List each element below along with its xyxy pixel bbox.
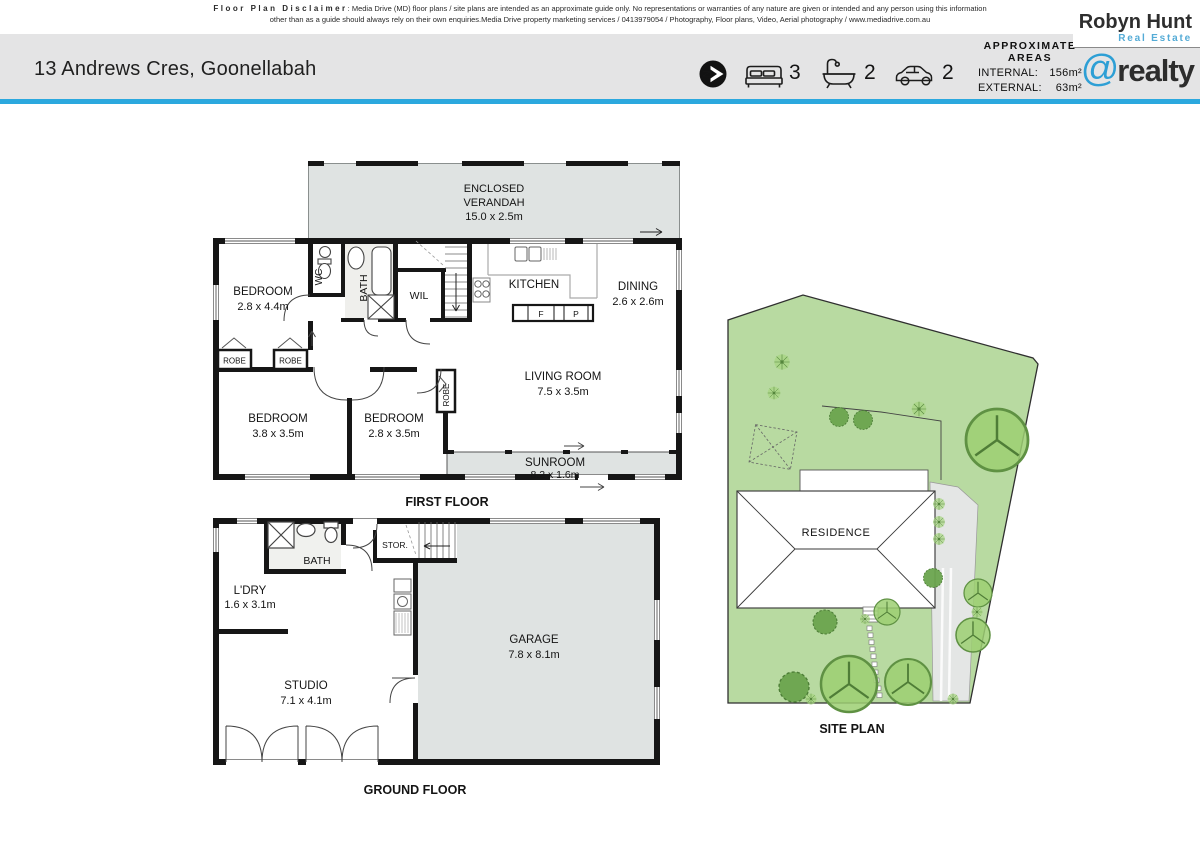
label-bedroom3: BEDROOM bbox=[364, 413, 423, 425]
label-verandah-dims: 15.0 x 2.5m bbox=[465, 211, 522, 223]
disclaimer-line1: Floor Plan Disclaimer: Media Drive (MD) … bbox=[135, 3, 1065, 14]
label-garage: GARAGE bbox=[509, 634, 559, 646]
floor-plan-sheet: Floor Plan Disclaimer: Media Drive (MD) … bbox=[0, 0, 1200, 849]
label-wc: WC bbox=[314, 269, 325, 286]
realty-at-mark: @ bbox=[1081, 49, 1120, 89]
label-residence: RESIDENCE bbox=[802, 527, 871, 539]
bed-icon bbox=[744, 63, 784, 88]
north-compass-icon: N bbox=[698, 59, 728, 89]
disclaimer-text1: : Media Drive (MD) floor plans / site pl… bbox=[348, 4, 987, 13]
caption-first-floor: FIRST FLOOR bbox=[405, 495, 488, 509]
label-bedroom2-dims: 3.8 x 3.5m bbox=[252, 428, 303, 440]
label-pantry: P bbox=[573, 309, 579, 319]
label-living: LIVING ROOM bbox=[525, 371, 602, 383]
label-bath: BATH bbox=[358, 274, 370, 301]
areas-title-1: APPROXIMATE bbox=[978, 40, 1082, 52]
disclaimer-title: Floor Plan Disclaimer bbox=[213, 4, 347, 13]
svg-text:N: N bbox=[700, 70, 711, 77]
disclaimer: Floor Plan Disclaimer: Media Drive (MD) … bbox=[135, 3, 1065, 25]
label-verandah-2: VERANDAH bbox=[463, 197, 524, 209]
agent-logo: Robyn Hunt Real Estate bbox=[1073, 0, 1200, 48]
label-gf-bath: BATH bbox=[303, 555, 330, 567]
internal-value: 156m² bbox=[1049, 67, 1082, 79]
accent-bar bbox=[0, 99, 1200, 104]
label-living-dims: 7.5 x 3.5m bbox=[537, 386, 588, 398]
residence-building bbox=[737, 491, 935, 608]
label-studio-dims: 7.1 x 4.1m bbox=[280, 695, 331, 707]
areas-title-2: AREAS bbox=[978, 52, 1082, 64]
bath-icon bbox=[820, 56, 858, 90]
residence-annex bbox=[800, 470, 928, 491]
bed-count: 3 bbox=[789, 61, 801, 85]
label-wil: WIL bbox=[410, 290, 429, 302]
external-area-row: EXTERNAL: 63m² bbox=[978, 82, 1082, 94]
caption-site-plan: SITE PLAN bbox=[819, 722, 884, 736]
approximate-areas: APPROXIMATE AREAS INTERNAL: 156m² EXTERN… bbox=[978, 40, 1082, 94]
label-kitchen: KITCHEN bbox=[509, 279, 559, 291]
label-verandah-1: ENCLOSED bbox=[464, 183, 525, 195]
site-plan: RESIDENCE SITE PLAN bbox=[715, 290, 1050, 740]
label-stor: STOR. bbox=[382, 540, 408, 550]
label-ldry: L'DRY bbox=[234, 585, 267, 597]
first-floor-plan: ENCLOSED VERANDAH 15.0 x 2.5m BEDROOM 2.… bbox=[210, 155, 690, 515]
bath-count: 2 bbox=[864, 61, 876, 85]
label-sunroom-dims: 8.2 x 1.6m bbox=[530, 469, 579, 481]
label-fridge: F bbox=[538, 309, 543, 319]
label-robe3: ROBE bbox=[442, 384, 451, 407]
label-bedroom3-dims: 2.8 x 3.5m bbox=[368, 428, 419, 440]
agent-tagline: Real Estate bbox=[1118, 33, 1192, 44]
label-dining-dims: 2.6 x 2.6m bbox=[612, 296, 663, 308]
stairs-up bbox=[406, 522, 455, 558]
label-bedroom1-dims: 2.8 x 4.4m bbox=[237, 301, 288, 313]
robe-closets bbox=[218, 338, 455, 412]
label-robe2: ROBE bbox=[279, 357, 302, 366]
label-bedroom2: BEDROOM bbox=[248, 413, 307, 425]
external-value: 63m² bbox=[1056, 82, 1082, 94]
label-sunroom: SUNROOM bbox=[525, 457, 585, 469]
label-bedroom1: BEDROOM bbox=[233, 286, 292, 298]
caption-ground-floor: GROUND FLOOR bbox=[364, 783, 467, 797]
laundry-fixtures bbox=[394, 579, 411, 635]
label-ldry-dims: 1.6 x 3.1m bbox=[224, 599, 275, 611]
disclaimer-text2: other than as a guide should always rely… bbox=[135, 14, 1065, 25]
property-address: 13 Andrews Cres, Goonellabah bbox=[34, 58, 316, 81]
realty-brand-logo: @realty bbox=[1081, 49, 1194, 89]
label-studio: STUDIO bbox=[284, 680, 328, 692]
car-count: 2 bbox=[942, 61, 954, 85]
label-robe1: ROBE bbox=[223, 357, 246, 366]
car-icon bbox=[893, 62, 937, 88]
agent-name: Robyn Hunt bbox=[1079, 12, 1192, 33]
label-garage-dims: 7.8 x 8.1m bbox=[508, 649, 559, 661]
internal-area-row: INTERNAL: 156m² bbox=[978, 67, 1082, 79]
ground-floor-plan: BATH STOR. L'DRY 1.6 x 3.1m GARAGE 7.8 x… bbox=[210, 515, 670, 805]
external-label: EXTERNAL: bbox=[978, 82, 1042, 94]
realty-wordmark: realty bbox=[1117, 53, 1194, 89]
internal-label: INTERNAL: bbox=[978, 67, 1038, 79]
label-dining: DINING bbox=[618, 281, 658, 293]
